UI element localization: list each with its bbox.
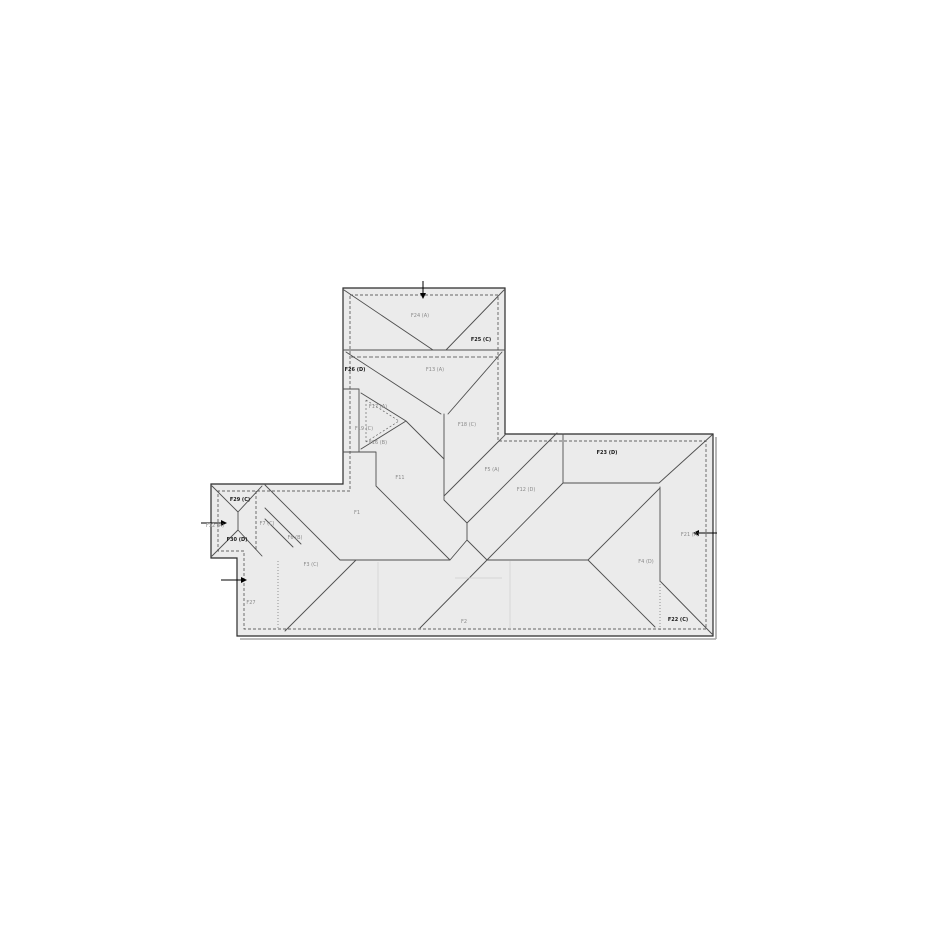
facet-label-F1: F1 <box>354 510 360 516</box>
facet-label-F16: F16 (B) <box>369 440 387 446</box>
facet-label-F25: F25 (C) <box>471 337 491 343</box>
facet-label-F32: F32 (A) <box>206 523 224 529</box>
facet-label-F27: F27 <box>246 600 255 606</box>
facet-label-F29: F29 (C) <box>230 497 250 503</box>
facet-label-F2: F2 <box>461 619 467 625</box>
facet-label-F5: F5 (A) <box>485 467 500 473</box>
facet-label-F13: F13 (A) <box>426 367 444 373</box>
facet-label-F26: F26 (D) <box>345 367 366 373</box>
facet-label-F3: F3 (C) <box>303 562 318 568</box>
facet-label-F4: F4 (D) <box>638 559 653 565</box>
roof-outline <box>211 288 713 636</box>
facet-label-F17: F17 (A) <box>369 404 387 410</box>
facet-label-F7: F7 (C) <box>259 521 274 527</box>
facet-label-F12: F12 (D) <box>517 487 536 493</box>
facet-label-F6: F6 (B) <box>288 535 303 541</box>
facet-label-F18: F18 (C) <box>458 422 476 428</box>
facet-label-F23: F23 (D) <box>597 450 618 456</box>
facet-label-F11: F11 <box>395 475 404 481</box>
page-canvas: F24 (A)F25 (C)F26 (D)F13 (A)F17 (A)F19 (… <box>0 0 925 925</box>
facet-label-F19: F19 (C) <box>355 426 373 432</box>
facet-label-F24: F24 (A) <box>411 313 429 319</box>
facet-label-F22: F22 (C) <box>668 617 688 623</box>
facet-label-F30: F30 (D) <box>227 537 248 543</box>
facet-label-F21: F21 (A) <box>681 532 699 538</box>
roof-plan-svg: F24 (A)F25 (C)F26 (D)F13 (A)F17 (A)F19 (… <box>0 0 925 925</box>
